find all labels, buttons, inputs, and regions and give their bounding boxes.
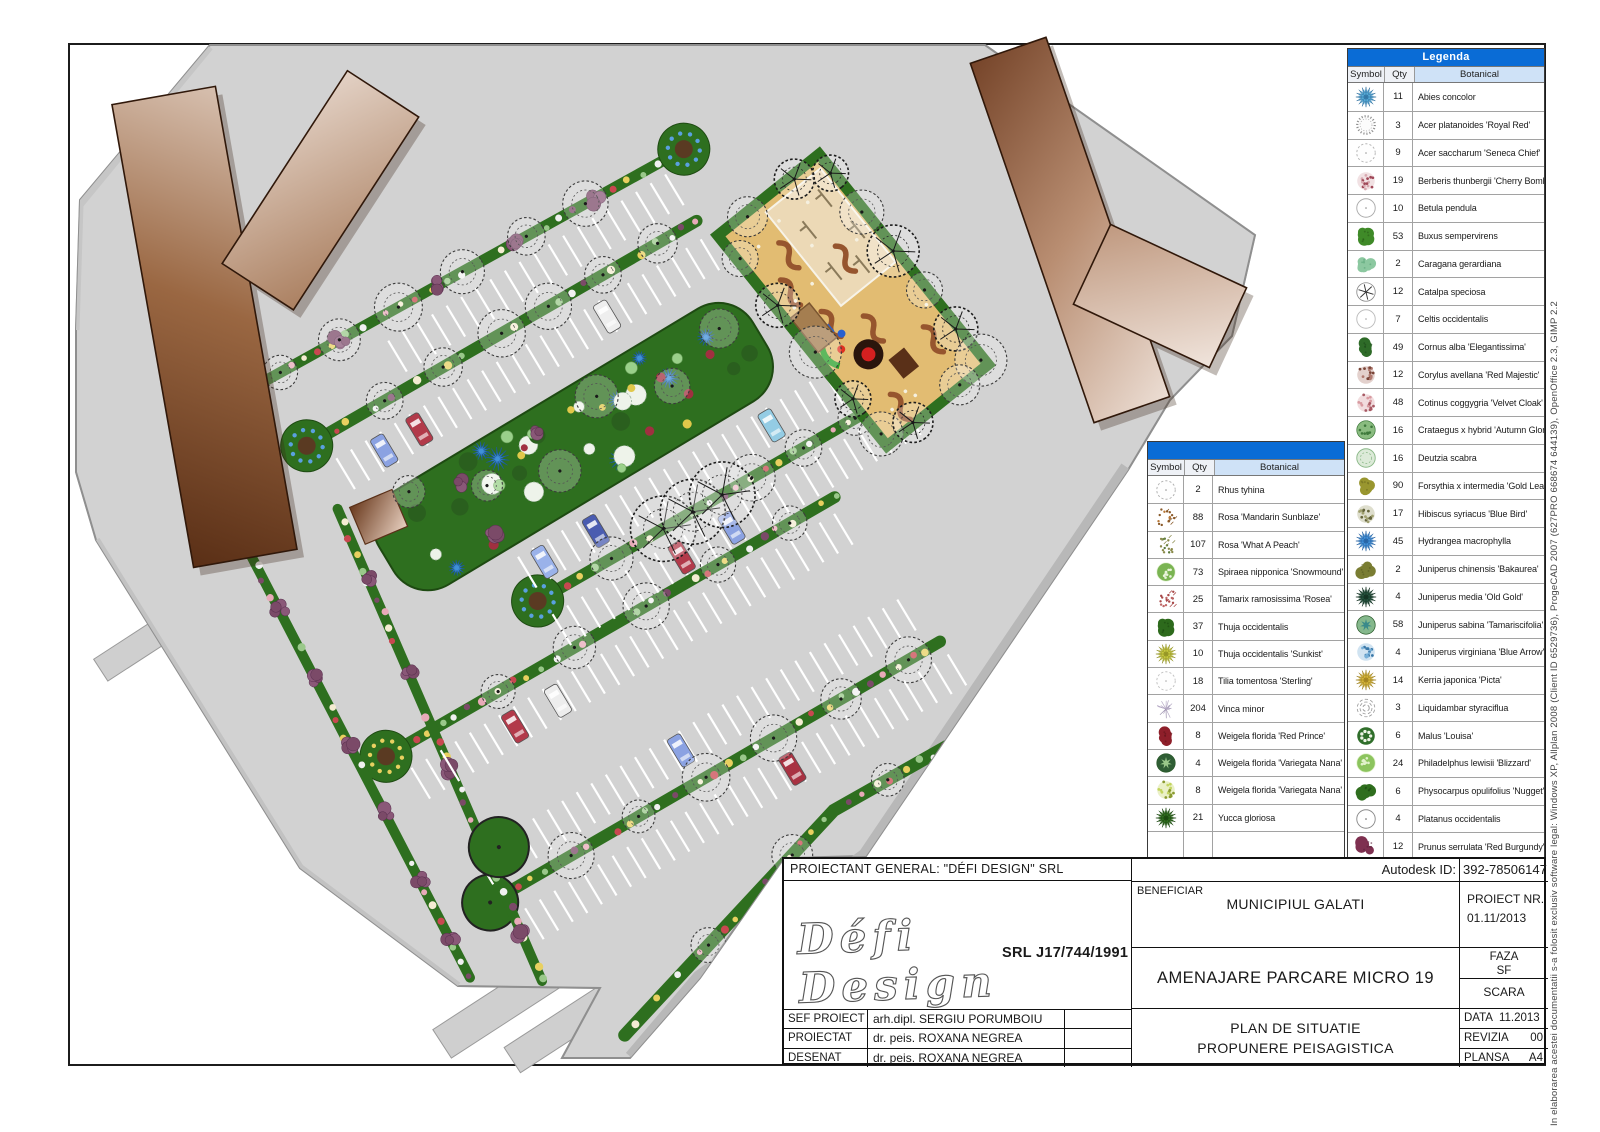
plant-qty: 4	[1184, 750, 1213, 776]
faza-cell: FAZA SF	[1460, 948, 1548, 979]
plant-qty: 58	[1384, 611, 1413, 638]
plant-name: Vinca minor	[1213, 704, 1344, 714]
plant-name: Rosa 'Mandarin Sunblaze'	[1213, 512, 1344, 522]
plan-description: PLAN DE SITUATIE PROPUNERE PEISAGISTICA	[1132, 1009, 1460, 1067]
legend-row: 45Hydrangea macrophylla	[1348, 527, 1544, 555]
proiect-nr-label: PROIECT NR.	[1467, 892, 1544, 906]
staff-role: SEF PROIECT	[784, 1010, 868, 1028]
col-botanical: Botanical	[1215, 460, 1344, 475]
legend-row: 3Liquidambar styraciflua	[1348, 694, 1544, 722]
plant-symbol-icon	[1348, 195, 1384, 222]
legend-row: 21Yucca gloriosa	[1148, 804, 1344, 831]
col-symbol: Symbol	[1148, 460, 1185, 475]
autodesk-id-label: Autodesk ID:	[1132, 859, 1460, 881]
legend-row: 6Malus 'Louisa'	[1348, 721, 1544, 749]
staff-name: arh.dipl. SERGIU PORUMBOIU	[868, 1010, 1065, 1028]
legend-row: 2Rhus tyhina	[1148, 476, 1344, 503]
plansa-row: PLANSA A4	[1460, 1048, 1548, 1067]
legend-row: 18Tilia tomentosa 'Sterling'	[1148, 667, 1344, 694]
plant-symbol-icon	[1148, 695, 1184, 721]
logo-area: Défi Design SRL J17/744/1991	[784, 881, 1132, 1009]
legend-column-headers: Symbol Qty Botanical	[1348, 66, 1544, 83]
plant-qty: 48	[1384, 389, 1413, 416]
plant-qty: 107	[1184, 532, 1213, 558]
plant-symbol-icon	[1148, 532, 1184, 558]
plant-qty: 21	[1184, 805, 1213, 831]
plant-name: Juniperus chinensis 'Bakaurea'	[1413, 564, 1544, 574]
beneficiar-cell: BENEFICIAR MUNICIPIUL GALATI	[1132, 882, 1460, 948]
plant-name: Tilia tomentosa 'Sterling'	[1213, 676, 1344, 686]
legend-row: 16Crataegus x hybrid 'Autumn Glory'	[1348, 416, 1544, 444]
plant-qty: 14	[1384, 667, 1413, 694]
proiect-nr-value: 01.11/2013	[1467, 911, 1526, 925]
plant-symbol-icon	[1348, 695, 1384, 722]
legend-row: 24Philadelphus lewisii 'Blizzard'	[1348, 749, 1544, 777]
plant-symbol-icon	[1148, 586, 1184, 612]
project-title: AMENAJARE PARCARE MICRO 19	[1132, 948, 1460, 1009]
legend-row: 12Catalpa speciosa	[1348, 277, 1544, 305]
plant-qty	[1184, 832, 1213, 858]
legend-table-secondary: Symbol Qty Botanical 2Rhus tyhina88Rosa …	[1147, 441, 1345, 859]
revizia-label: REVIZIA	[1460, 1029, 1509, 1047]
legend-row: 2Caragana gerardiana	[1348, 250, 1544, 278]
plant-qty: 2	[1384, 556, 1413, 583]
legend-row: 2Juniperus chinensis 'Bakaurea'	[1348, 555, 1544, 583]
staff-row: DESENATdr. peis. ROXANA NEGREA	[784, 1048, 1131, 1067]
revizia-value: 00	[1509, 1029, 1548, 1047]
empty-cell	[1065, 1010, 1131, 1028]
plant-name: Spiraea nipponica 'Snowmound'	[1213, 567, 1344, 577]
plant-symbol-icon	[1348, 140, 1384, 167]
plant-symbol-icon	[1148, 641, 1184, 667]
plant-name: Forsythia x intermedia 'Gold Leaf'	[1413, 481, 1544, 491]
software-legal-note: In elaborarea acestei documentatii s-a f…	[1549, 51, 1560, 1126]
plant-name: Caragana gerardiana	[1413, 259, 1544, 269]
plant-symbol-icon	[1148, 777, 1184, 803]
plant-symbol-icon	[1348, 223, 1384, 250]
plant-qty: 11	[1384, 83, 1413, 111]
staff-rows: SEF PROIECTarh.dipl. SERGIU PORUMBOIUPRO…	[784, 1009, 1132, 1067]
plant-qty: 4	[1384, 639, 1413, 666]
plant-symbol-icon	[1348, 528, 1384, 555]
staff-row: SEF PROIECTarh.dipl. SERGIU PORUMBOIU	[784, 1009, 1131, 1028]
plant-name: Corylus avellana 'Red Majestic'	[1413, 370, 1544, 380]
plant-qty: 9	[1384, 140, 1413, 167]
legend-row: 73Spiraea nipponica 'Snowmound'	[1148, 558, 1344, 585]
plant-symbol-icon	[1348, 362, 1384, 389]
legend-row: 17Hibiscus syriacus 'Blue Bird'	[1348, 499, 1544, 527]
plant-name: Catalpa speciosa	[1413, 287, 1544, 297]
plant-qty: 12	[1384, 278, 1413, 305]
legend-row: 4Juniperus media 'Old Gold'	[1348, 583, 1544, 611]
plant-symbol-icon	[1348, 473, 1384, 500]
plansa-label: PLANSA	[1460, 1049, 1509, 1067]
plant-symbol-icon	[1348, 306, 1384, 333]
col-qty: Qty	[1385, 67, 1415, 82]
proiectant-general: PROIECTANT GENERAL: "DÉFI DESIGN" SRL	[784, 859, 1132, 881]
plant-symbol-icon	[1348, 611, 1384, 638]
plant-qty: 12	[1384, 362, 1413, 389]
plant-symbol-icon	[1348, 112, 1384, 139]
plant-qty: 53	[1384, 223, 1413, 250]
plant-name: Rosa 'What A Peach'	[1213, 540, 1344, 550]
plant-qty: 37	[1184, 613, 1213, 639]
plant-name: Buxus sempervirens	[1413, 231, 1544, 241]
plant-symbol-icon	[1148, 750, 1184, 776]
faza-label: FAZA	[1490, 951, 1519, 963]
empty-cell	[1065, 1029, 1131, 1047]
plant-symbol-icon	[1348, 556, 1384, 583]
legend-row: 25Tamarix ramosissima 'Rosea'	[1148, 585, 1344, 612]
plant-symbol-icon	[1348, 833, 1384, 860]
legend-row: 12Prunus serrulata 'Red Burgundy'	[1348, 832, 1544, 860]
legend-row	[1148, 831, 1344, 858]
plant-qty: 7	[1384, 306, 1413, 333]
plant-name: Juniperus virginiana 'Blue Arrow'	[1413, 647, 1544, 657]
plant-name: Acer platanoides 'Royal Red'	[1413, 120, 1544, 130]
plant-name: Tamarix ramosissima 'Rosea'	[1213, 594, 1344, 604]
plant-name: Thuja occidentalis	[1213, 622, 1344, 632]
plant-symbol-icon	[1348, 722, 1384, 749]
plant-symbol-icon	[1348, 83, 1384, 111]
plant-symbol-icon	[1348, 667, 1384, 694]
legend-title	[1148, 442, 1344, 459]
plant-qty: 8	[1184, 723, 1213, 749]
legend-row: 4Platanus occidentalis	[1348, 805, 1544, 833]
legend-row: 49Cornus alba 'Elegantissima'	[1348, 333, 1544, 361]
plant-name: Yucca gloriosa	[1213, 813, 1344, 823]
plant-qty: 3	[1384, 695, 1413, 722]
plant-name: Berberis thunbergii 'Cherry Bomb'	[1413, 176, 1544, 186]
plant-symbol-icon	[1348, 167, 1384, 194]
legend-row: 12Corylus avellana 'Red Majestic'	[1348, 361, 1544, 389]
plant-symbol-icon	[1148, 613, 1184, 639]
plant-qty: 90	[1384, 473, 1413, 500]
plant-name: Platanus occidentalis	[1413, 814, 1544, 824]
plant-qty: 6	[1384, 778, 1413, 805]
plant-symbol-icon	[1348, 389, 1384, 416]
plant-symbol-icon	[1348, 750, 1384, 777]
plant-symbol-icon	[1148, 805, 1184, 831]
legend-row: 4Juniperus virginiana 'Blue Arrow'	[1348, 638, 1544, 666]
plant-name: Celtis occidentalis	[1413, 314, 1544, 324]
legend-row: 7Celtis occidentalis	[1348, 305, 1544, 333]
staff-role: DESENAT	[784, 1049, 868, 1067]
legend-row: 107Rosa 'What A Peach'	[1148, 531, 1344, 558]
staff-name: dr. peis. ROXANA NEGREA	[868, 1029, 1065, 1047]
legend-row: 53Buxus sempervirens	[1348, 222, 1544, 250]
data-row: DATA 11.2013	[1460, 1009, 1548, 1028]
plant-name: Deutzia scabra	[1413, 453, 1544, 463]
plant-qty: 18	[1184, 668, 1213, 694]
plant-name: Weigela florida 'Variegata Nana'	[1213, 758, 1344, 768]
plant-name: Thuja occidentalis 'Sunkist'	[1213, 649, 1344, 659]
data-value: 11.2013	[1493, 1009, 1548, 1028]
plant-name: Betula pendula	[1413, 203, 1544, 213]
plant-symbol-icon	[1348, 417, 1384, 444]
legend-row: 11Abies concolor	[1348, 83, 1544, 111]
plant-qty: 8	[1184, 777, 1213, 803]
plant-qty: 88	[1184, 504, 1213, 530]
legend-row: 16Deutzia scabra	[1348, 444, 1544, 472]
staff-role: PROIECTAT	[784, 1029, 868, 1047]
plant-qty: 4	[1384, 806, 1413, 833]
plant-symbol-icon	[1148, 668, 1184, 694]
plant-name: Juniperus sabina 'Tamariscifolia'	[1413, 620, 1544, 630]
plant-name: Liquidambar styraciflua	[1413, 703, 1544, 713]
plansa-value: A4	[1509, 1049, 1548, 1067]
plant-symbol-icon	[1148, 504, 1184, 530]
legend-row: 8Weigela florida 'Red Prince'	[1148, 722, 1344, 749]
legend-title: Legenda	[1348, 49, 1544, 66]
plant-symbol-icon	[1348, 278, 1384, 305]
plant-qty: 25	[1184, 586, 1213, 612]
plant-qty: 12	[1384, 833, 1413, 860]
plant-name: Rhus tyhina	[1213, 485, 1344, 495]
proiect-nr-cell: PROIECT NR. 01.11/2013	[1460, 882, 1548, 948]
plant-name: Weigela florida 'Variegata Nana'	[1213, 785, 1344, 795]
plant-qty: 45	[1384, 528, 1413, 555]
plant-qty: 10	[1184, 641, 1213, 667]
beneficiar-value: MUNICIPIUL GALATI	[1132, 896, 1459, 912]
plant-qty: 10	[1384, 195, 1413, 222]
plant-symbol-icon	[1148, 476, 1184, 503]
plant-symbol-icon	[1348, 251, 1384, 278]
col-qty: Qty	[1185, 460, 1215, 475]
plant-qty: 16	[1384, 417, 1413, 444]
legend-row: 6Physocarpus opulifolius 'Nugget'	[1348, 777, 1544, 805]
plant-symbol-icon	[1348, 778, 1384, 805]
legend-row: 90Forsythia x intermedia 'Gold Leaf'	[1348, 472, 1544, 500]
col-symbol: Symbol	[1348, 67, 1385, 82]
faza-value: SF	[1497, 965, 1512, 977]
autodesk-id-value: 392-78506147	[1460, 859, 1548, 881]
plant-name: Physocarpus opulifolius 'Nugget'	[1413, 786, 1544, 796]
legend-row: 204Vinca minor	[1148, 694, 1344, 721]
data-label: DATA	[1460, 1009, 1493, 1028]
legend-row: 14Kerria japonica 'Picta'	[1348, 666, 1544, 694]
plant-qty: 73	[1184, 559, 1213, 585]
staff-name: dr. peis. ROXANA NEGREA	[868, 1049, 1065, 1067]
legend-row: 37Thuja occidentalis	[1148, 612, 1344, 639]
legend-column-headers: Symbol Qty Botanical	[1148, 459, 1344, 476]
plant-symbol-icon	[1348, 806, 1384, 833]
plant-qty: 17	[1384, 500, 1413, 527]
plant-qty: 19	[1384, 167, 1413, 194]
plant-symbol-icon	[1348, 334, 1384, 361]
plant-qty: 24	[1384, 750, 1413, 777]
plant-name: Juniperus media 'Old Gold'	[1413, 592, 1544, 602]
plant-qty: 2	[1184, 476, 1213, 503]
legend-row: 48Cotinus coggygria 'Velvet Cloak'	[1348, 388, 1544, 416]
legend-row: 10Betula pendula	[1348, 194, 1544, 222]
empty-cell	[1148, 832, 1184, 858]
plant-name: Hydrangea macrophylla	[1413, 536, 1544, 546]
legend-row: 19Berberis thunbergii 'Cherry Bomb'	[1348, 166, 1544, 194]
plant-name: Malus 'Louisa'	[1413, 731, 1544, 741]
plant-symbol-icon	[1348, 639, 1384, 666]
plan-title-line2: PROPUNERE PEISAGISTICA	[1197, 1038, 1393, 1058]
plant-symbol-icon	[1348, 584, 1384, 611]
plant-name: Abies concolor	[1413, 92, 1544, 102]
plant-name: Crataegus x hybrid 'Autumn Glory'	[1413, 425, 1544, 435]
empty-cell	[1065, 1049, 1131, 1067]
legend-table-main: Legenda Symbol Qty Botanical 11Abies con…	[1347, 48, 1545, 861]
plant-name: Weigela florida 'Red Prince'	[1213, 731, 1344, 741]
plant-name: Cotinus coggygria 'Velvet Cloak'	[1413, 398, 1544, 408]
plant-qty: 16	[1384, 445, 1413, 472]
plant-symbol-icon	[1148, 559, 1184, 585]
srl-registration: SRL J17/744/1991	[1002, 945, 1128, 961]
plant-qty: 6	[1384, 722, 1413, 749]
plant-symbol-icon	[1348, 445, 1384, 472]
legend-row: 8Weigela florida 'Variegata Nana'	[1148, 776, 1344, 803]
plant-name: Hibiscus syriacus 'Blue Bird'	[1413, 509, 1544, 519]
plant-qty: 3	[1384, 112, 1413, 139]
revizia-row: REVIZIA 00	[1460, 1028, 1548, 1047]
plant-qty: 2	[1384, 251, 1413, 278]
meta-rows: DATA 11.2013 REVIZIA 00 PLANSA A4	[1460, 1009, 1548, 1067]
col-botanical: Botanical	[1415, 67, 1544, 82]
scara-cell: SCARA	[1460, 979, 1548, 1009]
plant-symbol-icon	[1348, 500, 1384, 527]
legend-row: 10Thuja occidentalis 'Sunkist'	[1148, 640, 1344, 667]
plant-name: Prunus serrulata 'Red Burgundy'	[1413, 842, 1544, 852]
plant-symbol-icon	[1148, 723, 1184, 749]
legend-row: 58Juniperus sabina 'Tamariscifolia'	[1348, 610, 1544, 638]
legend-row: 88Rosa 'Mandarin Sunblaze'	[1148, 503, 1344, 530]
plant-qty: 49	[1384, 334, 1413, 361]
plant-name: Philadelphus lewisii 'Blizzard'	[1413, 758, 1544, 768]
title-block: PROIECTANT GENERAL: "DÉFI DESIGN" SRL Dé…	[782, 857, 1546, 1065]
plant-qty: 204	[1184, 695, 1213, 721]
plant-name: Cornus alba 'Elegantissima'	[1413, 342, 1544, 352]
plant-qty: 4	[1384, 584, 1413, 611]
legend-row: 3Acer platanoides 'Royal Red'	[1348, 111, 1544, 139]
legend-row: 9Acer saccharum 'Seneca Chief'	[1348, 139, 1544, 167]
legend-row: 4Weigela florida 'Variegata Nana'	[1148, 749, 1344, 776]
plant-name: Kerria japonica 'Picta'	[1413, 675, 1544, 685]
staff-row: PROIECTATdr. peis. ROXANA NEGREA	[784, 1028, 1131, 1047]
autodesk-id-row: Autodesk ID: 392-78506147	[1132, 859, 1548, 882]
plan-title-line1: PLAN DE SITUATIE	[1230, 1018, 1361, 1038]
plant-name: Acer saccharum 'Seneca Chief'	[1413, 148, 1544, 158]
